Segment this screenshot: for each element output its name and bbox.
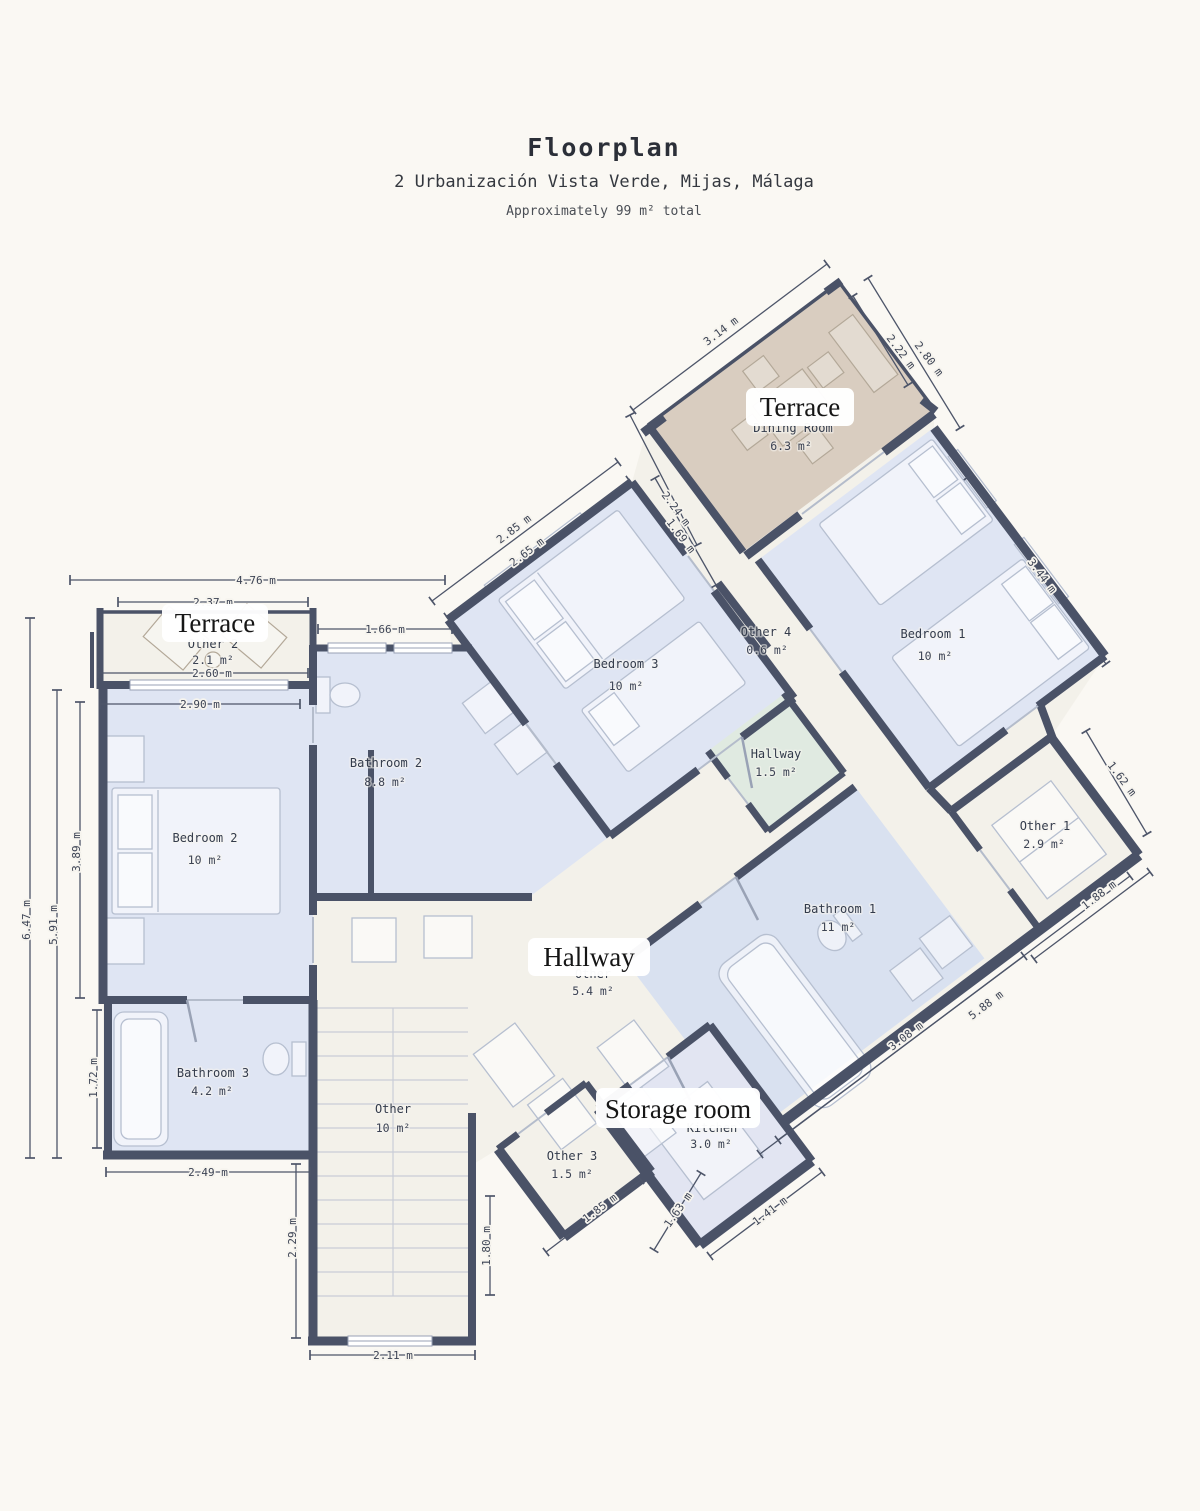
room-label-other-4: Other 4 [741,625,792,639]
room-area-dining: 6.3 m² [770,439,812,453]
floorplan-page: Floorplan 2 Urbanización Vista Verde, Mi… [0,0,1200,1511]
hallway-overlay-label: Hallway [543,942,635,972]
room-area-bedroom-3: 10 m² [609,679,644,693]
room-area-stairs: 10 m² [376,1121,411,1135]
dim-label: 2.90 m [180,698,220,711]
page-note: Approximately 99 m² total [506,204,702,219]
dim-label: 2.29 m [286,1218,299,1258]
dim-label: 3.89 m [70,832,83,872]
room-label-stairs: Other [375,1102,411,1116]
terrace-top-overlay-label: Terrace [760,392,841,422]
room-label-bedroom-1: Bedroom 1 [900,627,965,641]
room-area-hallway-small: 1.5 m² [755,765,797,779]
page-subtitle: 2 Urbanización Vista Verde, Mijas, Málag… [394,172,814,192]
dim-label: 4.76 m [236,574,276,587]
room-area-kitchen: 3.0 m² [690,1137,732,1151]
room-label-other-3: Other 3 [547,1149,598,1163]
room-label-hallway-small: Hallway [751,747,802,761]
room-label-other-1: Other 1 [1020,819,1071,833]
room-area-bathroom-1: 11 m² [821,920,856,934]
dim-label: 1.66 m [365,623,405,636]
room-label-bedroom-2: Bedroom 2 [172,831,237,845]
room-label-bathroom-3: Bathroom 3 [177,1066,249,1080]
room-area-bathroom-2: 8.8 m² [364,775,406,789]
dim-label: 2.11 m [373,1349,413,1362]
floorplan-canvas: Floorplan 2 Urbanización Vista Verde, Mi… [0,0,1200,1511]
room-label-bathroom-2: Bathroom 2 [350,756,422,770]
dim-label: 2.60 m [192,667,232,680]
page-title: Floorplan [527,133,680,162]
room-area-bedroom-2: 10 m² [188,853,223,867]
room-area-other-2: 2.1 m² [192,653,234,667]
storage-overlay-label: Storage room [605,1094,751,1124]
room-area-bedroom-1: 10 m² [918,649,953,663]
room-area-bathroom-3: 4.2 m² [191,1084,233,1098]
terrace-left-overlay-label: Terrace [175,608,256,638]
dim-label: 5.91 m [47,905,60,945]
dim-label: 1.72 m [87,1058,100,1098]
dim-label: 6.47 m [20,900,33,940]
room-area-other-4: 0.6 m² [746,643,788,657]
room-area-other-3: 1.5 m² [551,1167,593,1181]
dim-label: 1.80 m [480,1226,493,1266]
room-area-other-1: 2.9 m² [1023,837,1065,851]
dim-label: 2.49 m [188,1166,228,1179]
room-label-bedroom-3: Bedroom 3 [593,657,658,671]
room-label-bathroom-1: Bathroom 1 [804,902,876,916]
room-area-hallway-main: 5.4 m² [572,984,614,998]
